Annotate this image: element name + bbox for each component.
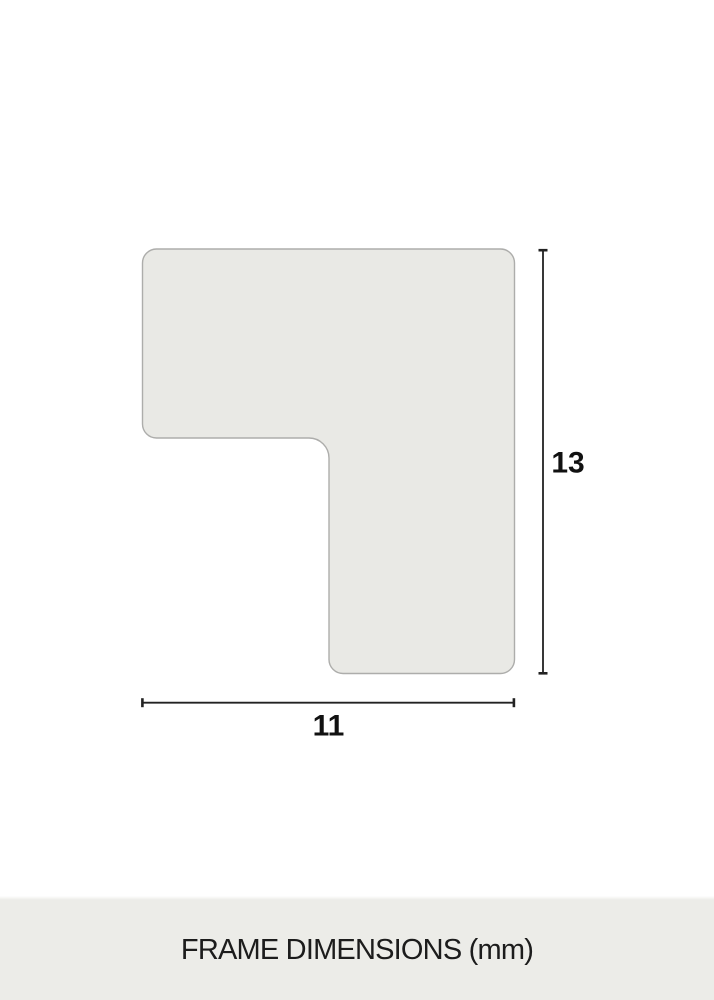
svg-text:11: 11 <box>313 710 345 743</box>
svg-text:13: 13 <box>551 447 584 480</box>
